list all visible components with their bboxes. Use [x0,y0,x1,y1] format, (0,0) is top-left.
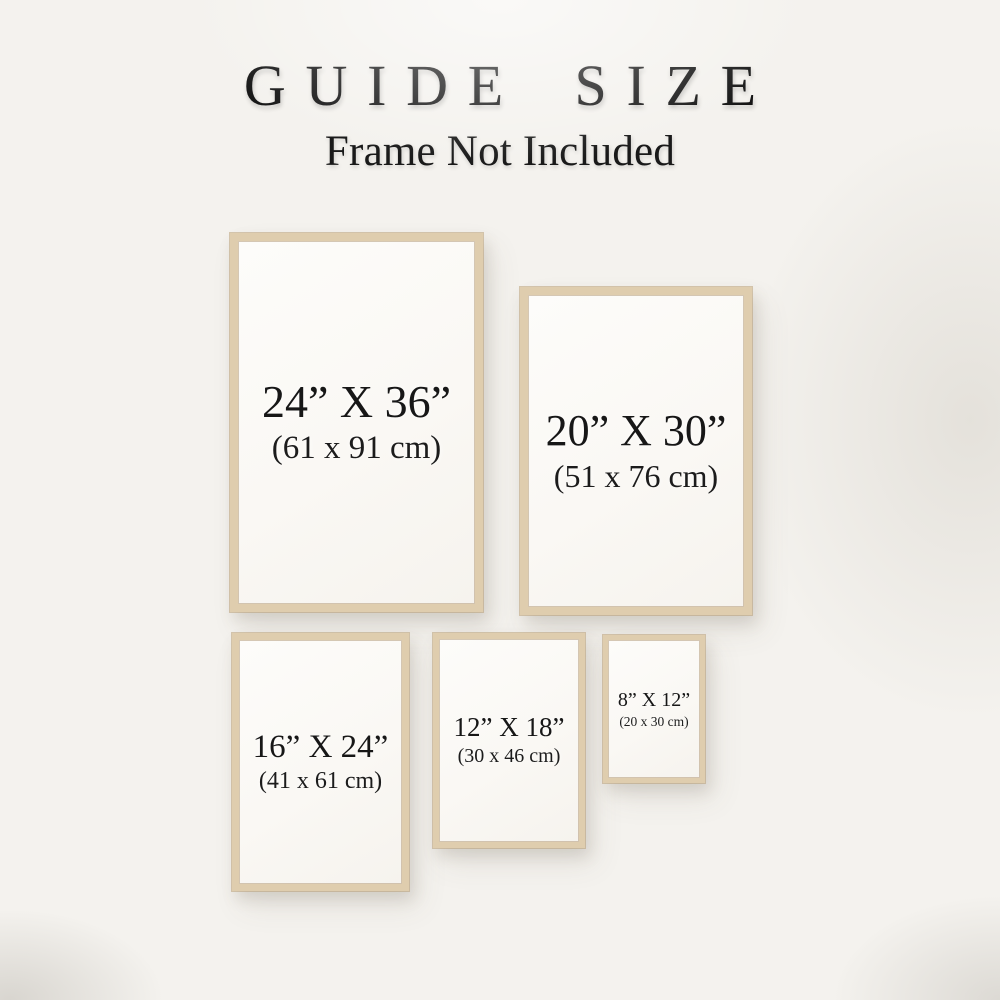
header: GUIDE SIZE Frame Not Included [0,52,1000,176]
frame-size-inches: 16” X 24” [253,729,389,765]
size-guide-poster: GUIDE SIZE Frame Not Included 24” X 36” … [0,0,1000,1000]
frame-size-cm: (30 x 46 cm) [458,745,561,768]
frame-20x30: 20” X 30” (51 x 76 cm) [520,287,752,615]
frame-size-inches: 12” X 18” [454,713,565,743]
frame-12x18: 12” X 18” (30 x 46 cm) [433,633,585,848]
frame-size-cm: (41 x 61 cm) [259,768,382,796]
page-title: GUIDE SIZE [20,52,1000,119]
frame-16x24: 16” X 24” (41 x 61 cm) [232,633,409,891]
frame-size-inches: 8” X 12” [618,689,690,711]
frame-size-cm: (61 x 91 cm) [272,430,442,468]
frame-size-cm: (20 x 30 cm) [619,714,688,730]
frame-size-cm: (51 x 76 cm) [554,458,718,495]
frame-24x36: 24” X 36” (61 x 91 cm) [230,233,483,612]
frame-size-inches: 20” X 30” [546,407,727,455]
frame-8x12: 8” X 12” (20 x 30 cm) [603,635,705,783]
page-subtitle: Frame Not Included [0,127,1000,176]
frame-size-inches: 24” X 36” [262,377,451,428]
